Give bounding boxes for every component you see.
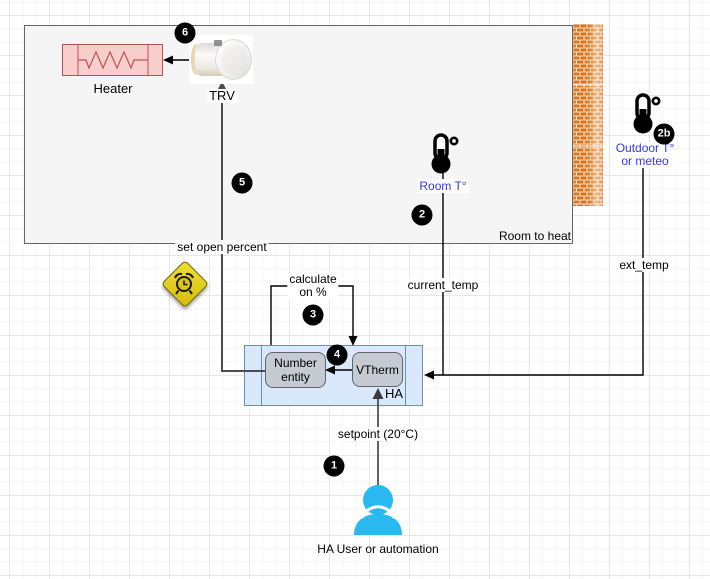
number-entity-label-line2: entity [281, 370, 310, 384]
calculate-label-line2: on % [289, 286, 336, 299]
badge-4: 4 [327, 345, 348, 366]
room-thermometer-icon [427, 133, 459, 175]
user-label: HA User or automation [317, 542, 438, 556]
trv-label: TRV [207, 89, 237, 103]
diagram-canvas: Number entity VTherm [0, 0, 710, 579]
vtherm-label: VTherm [356, 363, 399, 377]
calculate-on-percent-label: calculate on % [287, 273, 338, 299]
badge-2b: 2b [654, 124, 675, 145]
vtherm-node: VTherm [352, 352, 403, 387]
room-temp-label: Room T° [417, 179, 468, 193]
user-icon [352, 484, 404, 536]
outdoor-temp-label: Outdoor T° or meteo [614, 142, 677, 168]
badge-6: 6 [175, 23, 196, 44]
badge-1: 1 [324, 456, 345, 477]
ha-box-right-bar [405, 346, 406, 405]
room-to-heat-label: Room to heat [499, 229, 571, 243]
ext-temp-label: ext_temp [617, 258, 670, 272]
number-entity-node: Number entity [265, 352, 326, 388]
ha-label: HA [385, 387, 403, 401]
heater-label: Heater [93, 82, 132, 96]
alarm-clock-icon [168, 267, 200, 299]
badge-2: 2 [412, 205, 433, 226]
current-temp-label: current_temp [406, 278, 481, 292]
badge-3: 3 [303, 305, 324, 326]
ha-box-left-bar [261, 346, 262, 405]
outdoor-label-line2: or meteo [616, 155, 675, 168]
badge-5: 5 [232, 173, 253, 194]
setpoint-label: setpoint (20°C) [336, 427, 420, 441]
trv-valve-photo [189, 35, 253, 84]
trv-display-chip [214, 40, 222, 46]
trv-dial [221, 45, 247, 74]
brick-wall [573, 24, 603, 206]
set-open-percent-label: set open percent [175, 240, 268, 254]
arrowhead-ext-temp [424, 371, 434, 380]
number-entity-label-line1: Number [274, 356, 317, 370]
heater-shape [62, 44, 163, 76]
